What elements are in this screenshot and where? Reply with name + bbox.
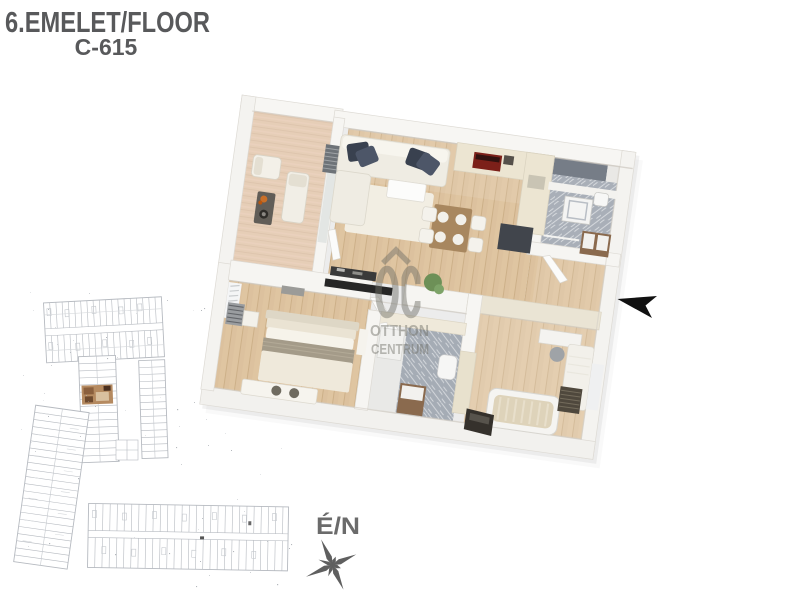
svg-text:CENTRUM: CENTRUM xyxy=(371,341,429,358)
svg-text:C-615: C-615 xyxy=(75,34,138,60)
svg-text:OTTHON: OTTHON xyxy=(370,323,429,340)
svg-text:É/N: É/N xyxy=(316,512,360,540)
